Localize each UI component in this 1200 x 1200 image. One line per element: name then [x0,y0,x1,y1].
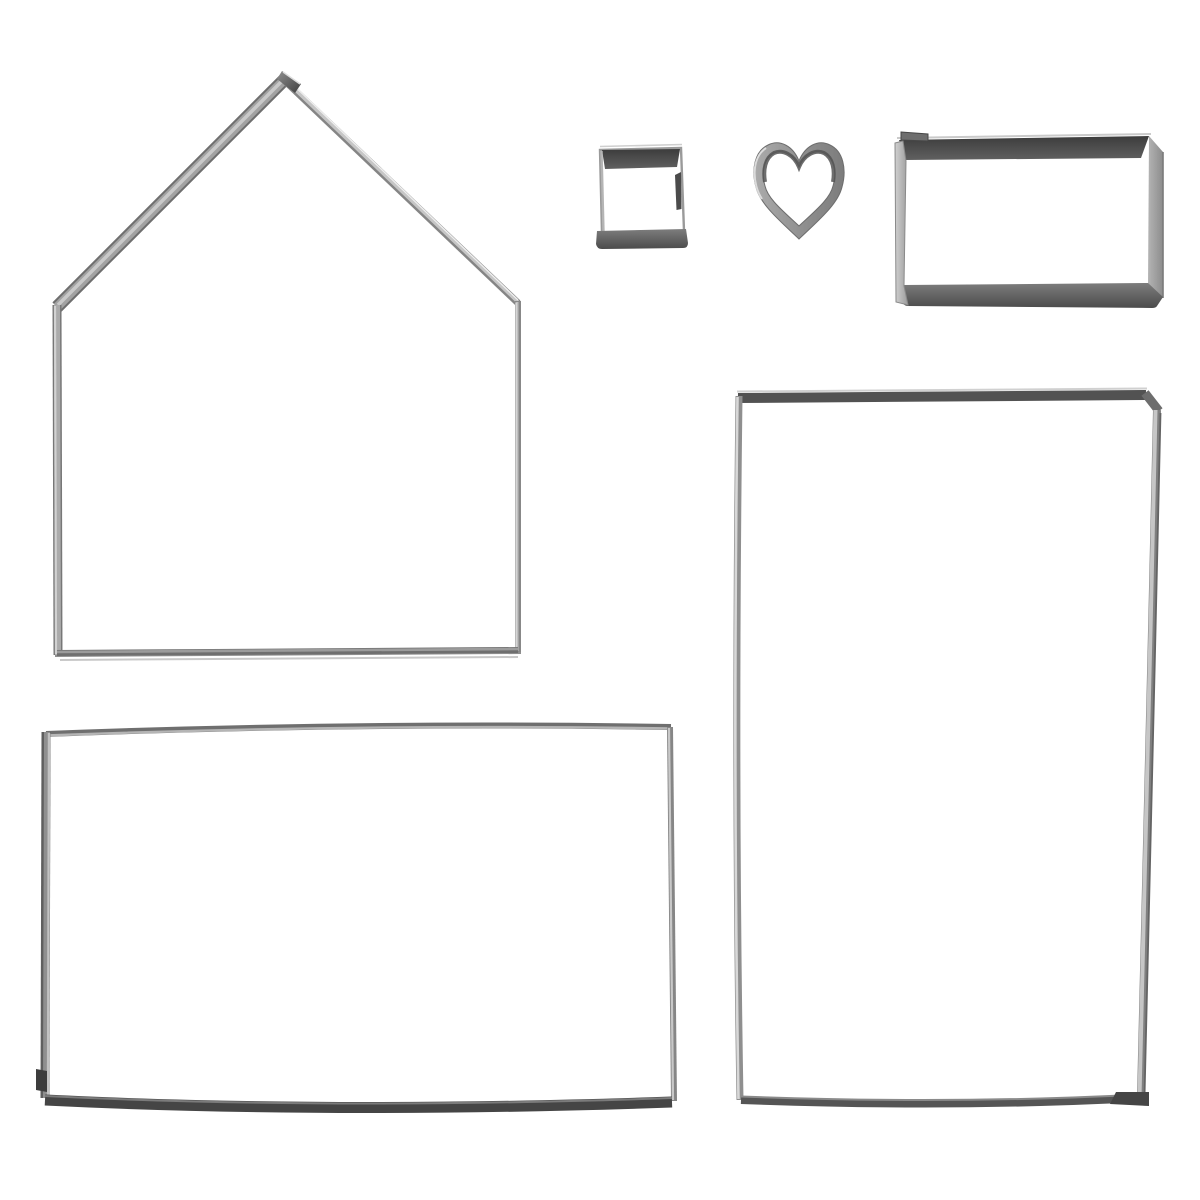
portrait-rect-left-strip [735,396,740,1100]
product-photo [0,0,1200,1200]
house-right-wall-strip [516,301,518,652]
small-rect-interior [903,138,1148,288]
portrait-rect-seam-clip [1110,1092,1149,1106]
small-rect-seam-clip [901,132,928,141]
small-rect-right-wall [1148,136,1163,298]
cookie-cutter-set-image [0,0,1200,1200]
landscape-rect-left-strip [45,732,49,1098]
house-left-wall-strip [55,305,58,655]
small-rect-inner-back-wall [899,136,1149,160]
square-inner-back-wall [602,149,680,169]
small-rectangle-cutter [895,132,1163,308]
small-rect-bottom-band [902,283,1163,308]
small-square-cutter [596,145,688,250]
square-bottom-band [596,229,688,249]
landscape-rect-seam-clip [36,1069,47,1092]
